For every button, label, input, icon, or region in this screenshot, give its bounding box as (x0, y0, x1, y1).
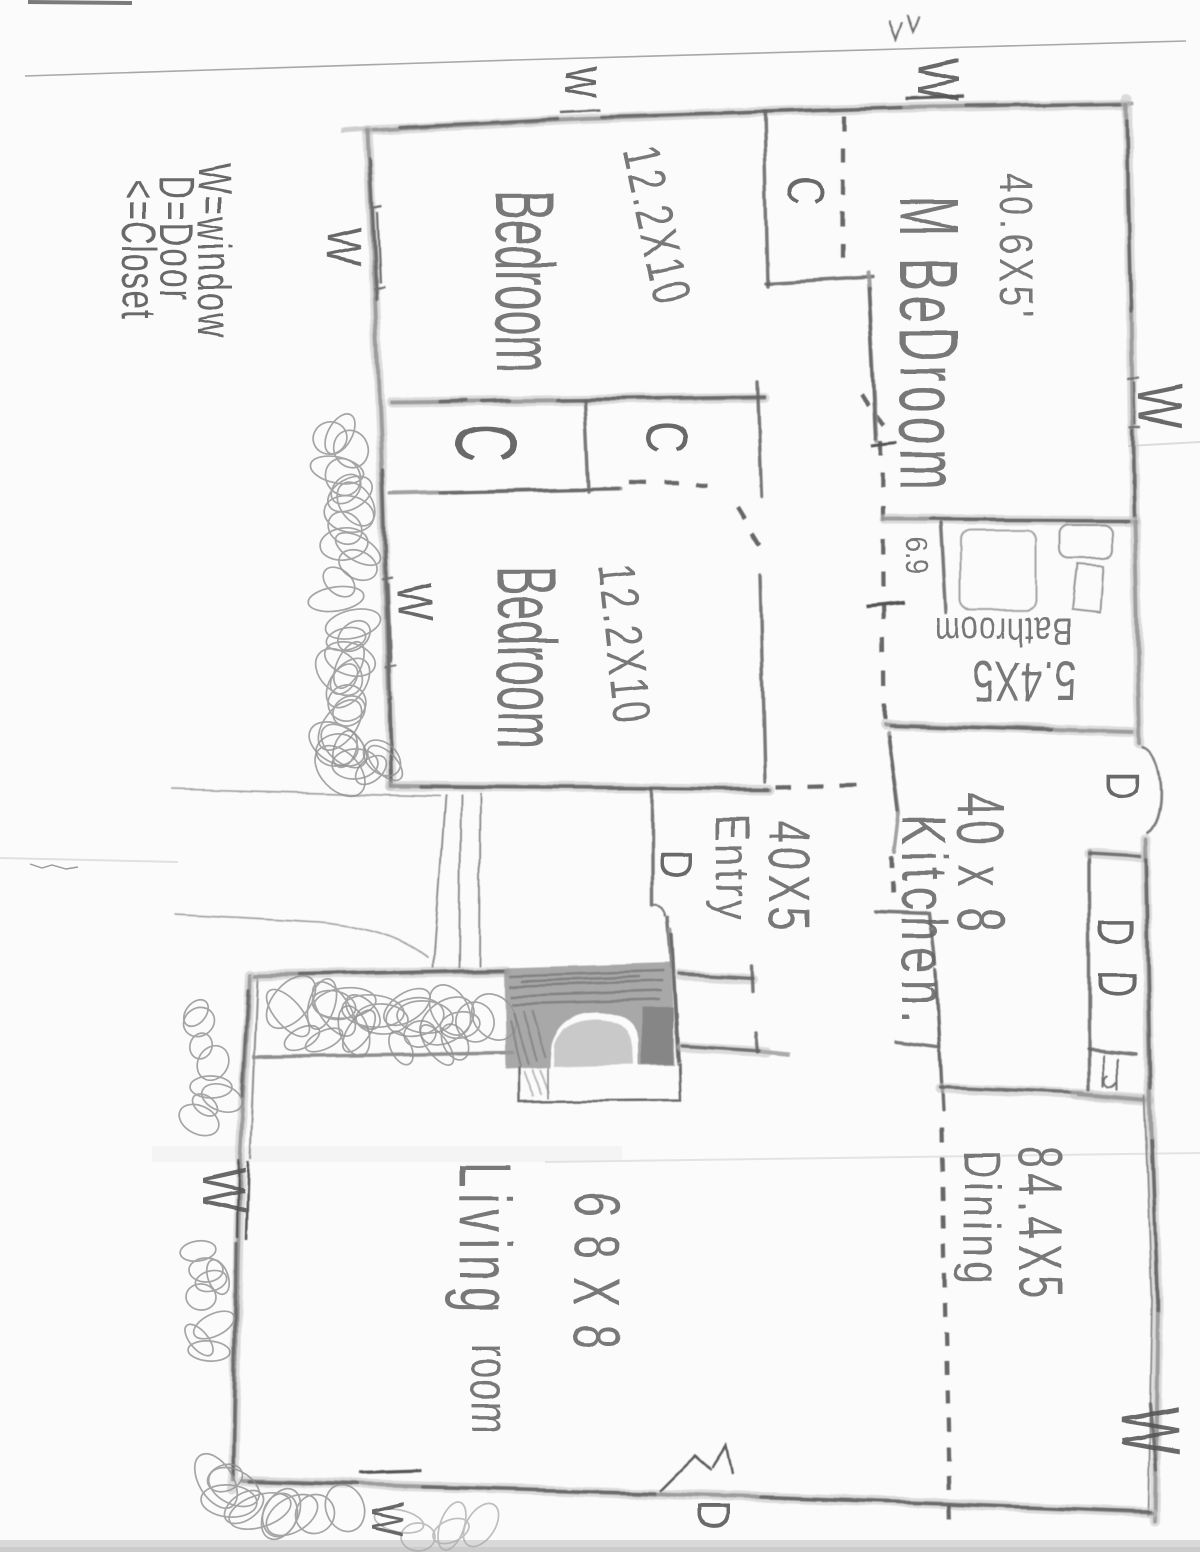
svg-text:40.6X5': 40.6X5' (990, 172, 1043, 321)
svg-text:W: W (387, 583, 443, 621)
svg-text:D: D (688, 1500, 739, 1530)
svg-text:W: W (905, 58, 971, 102)
svg-text:D: D (1086, 970, 1148, 997)
svg-text:W: W (1104, 1406, 1198, 1455)
svg-text:W: W (317, 228, 370, 266)
svg-text:C: C (633, 420, 699, 453)
svg-text:Bathroom: Bathroom (934, 609, 1072, 652)
svg-text:M BeDroom: M BeDroom (882, 196, 975, 493)
svg-text:Entry: Entry (705, 814, 758, 922)
svg-text:Bedroom: Bedroom (477, 190, 570, 373)
svg-text:W: W (1124, 384, 1197, 428)
svg-text:40X5: 40X5 (756, 820, 822, 934)
svg-text:6.9: 6.9 (898, 537, 933, 573)
svg-text:84.4X5: 84.4X5 (1005, 1146, 1074, 1303)
svg-text:Dining: Dining (953, 1150, 1011, 1287)
svg-text:68X8: 68X8 (560, 1192, 634, 1367)
svg-text:D: D (1084, 918, 1146, 945)
svg-text:Bedroom: Bedroom (479, 566, 572, 749)
svg-text:room: room (460, 1344, 520, 1435)
svg-text:C: C (777, 176, 835, 205)
svg-text:Living: Living (443, 1162, 526, 1318)
svg-text:5.4X5: 5.4X5 (972, 649, 1076, 713)
svg-text:w: w (554, 65, 618, 98)
svg-text:D: D (649, 850, 700, 879)
svg-text:C: C (436, 424, 535, 462)
svg-text:<=Closet: <=Closet (112, 180, 166, 320)
svg-text:40 x 8: 40 x 8 (944, 792, 1018, 936)
svg-text:W: W (190, 1168, 259, 1214)
svg-text:D: D (1095, 771, 1148, 800)
svg-text:W: W (362, 1502, 413, 1536)
